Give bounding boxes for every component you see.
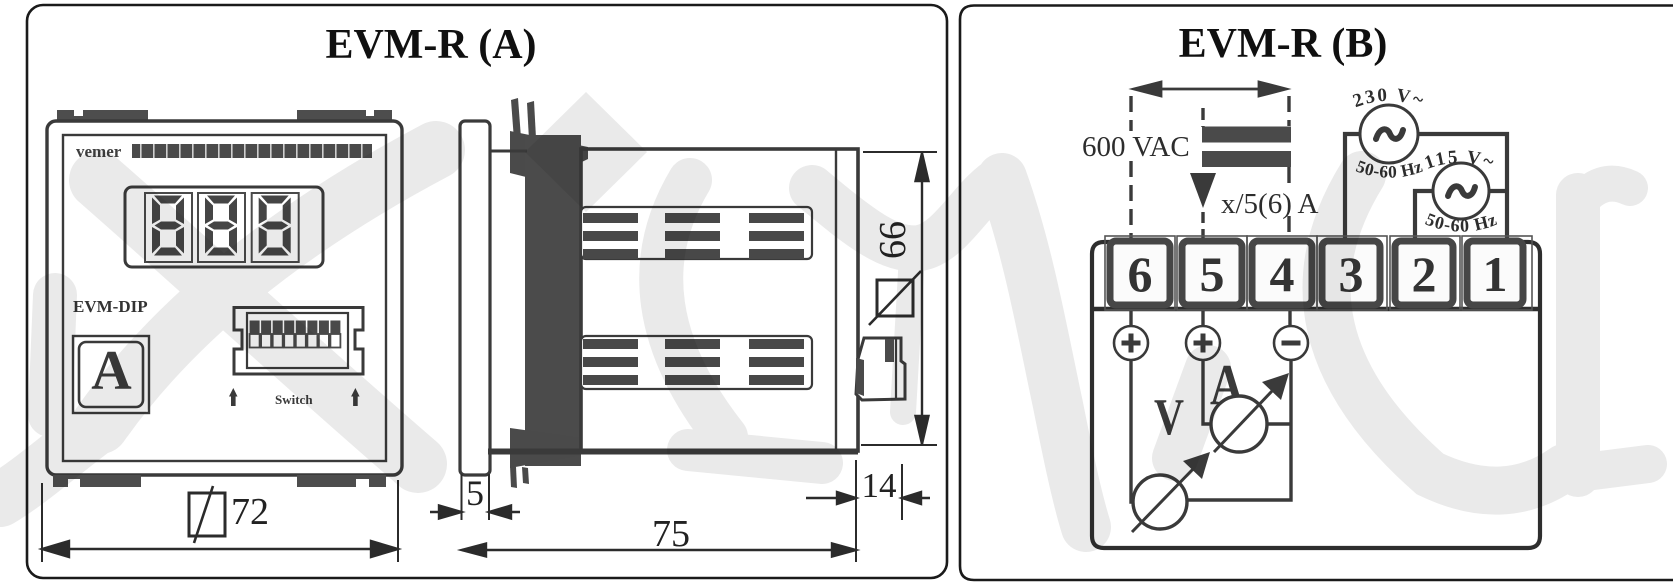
svg-text:5: 5: [1200, 246, 1225, 302]
svg-text:14: 14: [862, 466, 897, 505]
svg-text:5: 5: [466, 473, 484, 513]
svg-text:4: 4: [1270, 246, 1295, 302]
svg-text:EVM-R (A): EVM-R (A): [325, 22, 536, 68]
svg-text:x/5(6) A: x/5(6) A: [1221, 188, 1319, 220]
svg-text:6: 6: [1128, 246, 1153, 302]
svg-text:2: 2: [1412, 246, 1437, 302]
svg-text:75: 75: [652, 513, 690, 555]
svg-text:600 VAC: 600 VAC: [1082, 131, 1190, 163]
svg-text:EVM-R (B): EVM-R (B): [1179, 21, 1388, 67]
svg-text:1: 1: [1483, 246, 1508, 302]
svg-text:72: 72: [231, 491, 269, 533]
svg-text:EVM-DIP: EVM-DIP: [73, 297, 148, 316]
